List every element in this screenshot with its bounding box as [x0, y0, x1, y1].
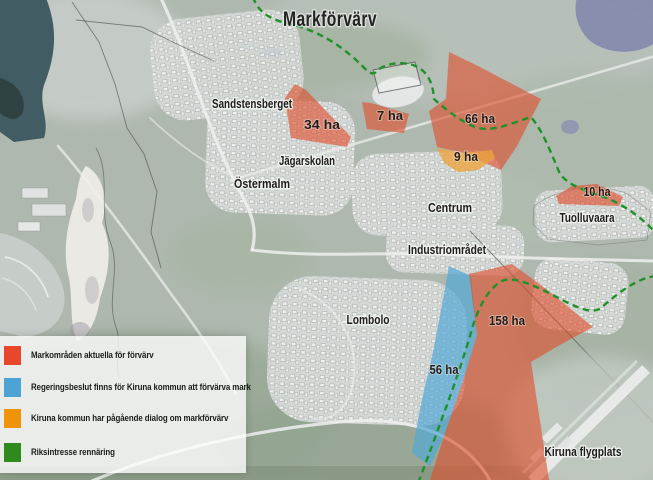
- label-158ha: 158 ha: [489, 314, 526, 328]
- label-66ha: 66 ha: [465, 112, 496, 126]
- label-industriomradet: Industriområdet: [408, 243, 487, 257]
- legend-item-government-decision: Regeringsbeslut finns för Kiruna kommun …: [4, 377, 246, 397]
- kiruna-land-acquisition-map: Markförvärv Sandstensberget Jägarskolan …: [0, 0, 653, 480]
- legend-item-reindeer: Riksintresse rennäring: [4, 442, 246, 462]
- label-jagarskolan: Jägarskolan: [279, 154, 335, 168]
- label-9ha: 9 ha: [454, 150, 479, 164]
- label-ostermalm: Östermalm: [234, 176, 290, 191]
- label-lombolo: Lombolo: [347, 313, 390, 327]
- legend-label-dialog: Kiruna kommun har pågående dialog om mar…: [31, 413, 228, 423]
- map-title: Markförvärv: [283, 8, 377, 31]
- legend-swatch-red: [4, 346, 21, 365]
- label-56ha: 56 ha: [430, 363, 460, 377]
- legend: Markområden aktuella för förvärv Regerin…: [0, 336, 246, 473]
- legend-swatch-green: [4, 443, 21, 462]
- industrial-building: [22, 188, 48, 198]
- ridge-shadow: [85, 276, 99, 304]
- legend-label-acquisition: Markområden aktuella för förvärv: [31, 350, 154, 360]
- legend-label-reindeer: Riksintresse rennäring: [31, 447, 115, 457]
- label-7ha: 7 ha: [377, 109, 404, 123]
- pond: [561, 120, 579, 134]
- terrain-patch: [170, 215, 310, 295]
- legend-swatch-orange: [4, 409, 21, 428]
- label-sandstensberget: Sandstensberget: [212, 97, 293, 111]
- label-centrum: Centrum: [428, 201, 472, 215]
- legend-label-government-decision: Regeringsbeslut finns för Kiruna kommun …: [31, 382, 251, 392]
- label-10ha: 10 ha: [584, 185, 612, 199]
- legend-item-dialog: Kiruna kommun har pågående dialog om mar…: [4, 408, 246, 428]
- label-kiruna-flygplats: Kiruna flygplats: [545, 445, 622, 459]
- legend-swatch-blue: [4, 378, 21, 397]
- industrial-building: [18, 222, 40, 231]
- label-34ha: 34 ha: [304, 118, 341, 132]
- label-tuolluvaara: Tuolluvaara: [560, 211, 616, 225]
- legend-item-acquisition: Markområden aktuella för förvärv: [4, 345, 246, 365]
- ridge-shadow: [82, 198, 94, 222]
- industrial-building: [32, 204, 66, 216]
